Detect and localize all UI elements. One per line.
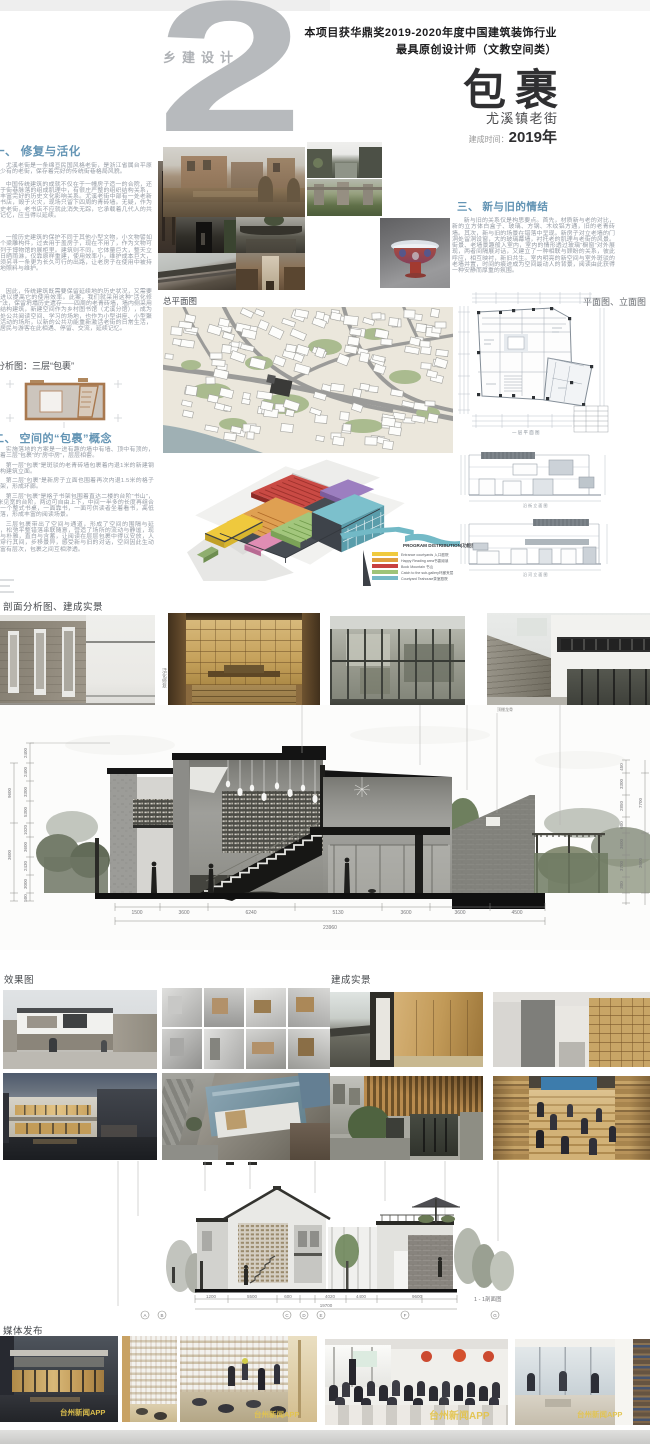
svg-text:9600: 9600	[7, 787, 12, 798]
svg-text:2400: 2400	[23, 747, 28, 758]
svg-text:1020: 1020	[23, 824, 28, 835]
svg-text:3300: 3300	[23, 786, 28, 797]
svg-text:9600: 9600	[412, 1294, 423, 1299]
svg-text:5130: 5130	[332, 910, 343, 916]
svg-text:沿 街 立 面 图: 沿 街 立 面 图	[523, 502, 547, 508]
svg-text:Happy Reading area书香阅读: Happy Reading area书香阅读	[401, 558, 449, 563]
svg-text:E: E	[319, 1313, 322, 1318]
svg-text:顶棚龙骨: 顶棚龙骨	[497, 706, 513, 712]
svg-text:Catch to the sub-gallery环廊夹层: Catch to the sub-gallery环廊夹层	[401, 570, 454, 575]
svg-text:F: F	[404, 1313, 407, 1318]
svg-text:3600: 3600	[178, 910, 189, 916]
svg-text:4400: 4400	[356, 1294, 367, 1299]
svg-text:3600: 3600	[454, 910, 465, 916]
svg-text:4500: 4500	[511, 910, 522, 916]
svg-text:A: A	[143, 1313, 146, 1318]
svg-text:1 - 1剖面图: 1 - 1剖面图	[474, 1295, 502, 1303]
svg-text:4020: 4020	[325, 1294, 336, 1299]
svg-text:3300: 3300	[619, 778, 624, 789]
svg-text:19700: 19700	[320, 1303, 333, 1308]
svg-text:3600: 3600	[400, 910, 411, 916]
svg-text:沿 河 立 面 图: 沿 河 立 面 图	[523, 571, 547, 577]
svg-text:Entrance courtyards 入口庭院: Entrance courtyards 入口庭院	[401, 552, 449, 557]
svg-text:2400: 2400	[23, 766, 28, 777]
svg-text:7700: 7700	[638, 797, 643, 808]
svg-text:23960: 23960	[323, 925, 337, 931]
svg-text:1500: 1500	[131, 910, 142, 916]
svg-text:3700: 3700	[619, 860, 624, 871]
svg-text:3600: 3600	[23, 841, 28, 852]
svg-text:450: 450	[619, 763, 624, 771]
svg-text:6240: 6240	[245, 910, 256, 916]
svg-text:Courtyard Teahouse茶室庭院: Courtyard Teahouse茶室庭院	[401, 576, 448, 581]
svg-text:B: B	[160, 1313, 163, 1318]
svg-text:1200: 1200	[206, 1294, 217, 1299]
svg-text:2850: 2850	[619, 800, 624, 811]
svg-text:500: 500	[23, 894, 28, 902]
svg-text:600: 600	[619, 821, 624, 829]
svg-text:300: 300	[619, 881, 624, 889]
svg-text:5500: 5500	[247, 1294, 258, 1299]
svg-text:3000: 3000	[23, 878, 28, 889]
svg-text:一 层 平 面 图: 一 层 平 面 图	[512, 430, 540, 436]
svg-text:3600: 3600	[638, 857, 643, 868]
svg-text:3600: 3600	[619, 838, 624, 849]
svg-text:600: 600	[284, 1294, 292, 1299]
svg-text:3600: 3600	[7, 849, 12, 860]
svg-text:5300: 5300	[23, 806, 28, 817]
svg-text:2430: 2430	[23, 860, 28, 871]
svg-text:G: G	[493, 1313, 497, 1318]
svg-text:Book Mountain 书山: Book Mountain 书山	[401, 564, 434, 569]
